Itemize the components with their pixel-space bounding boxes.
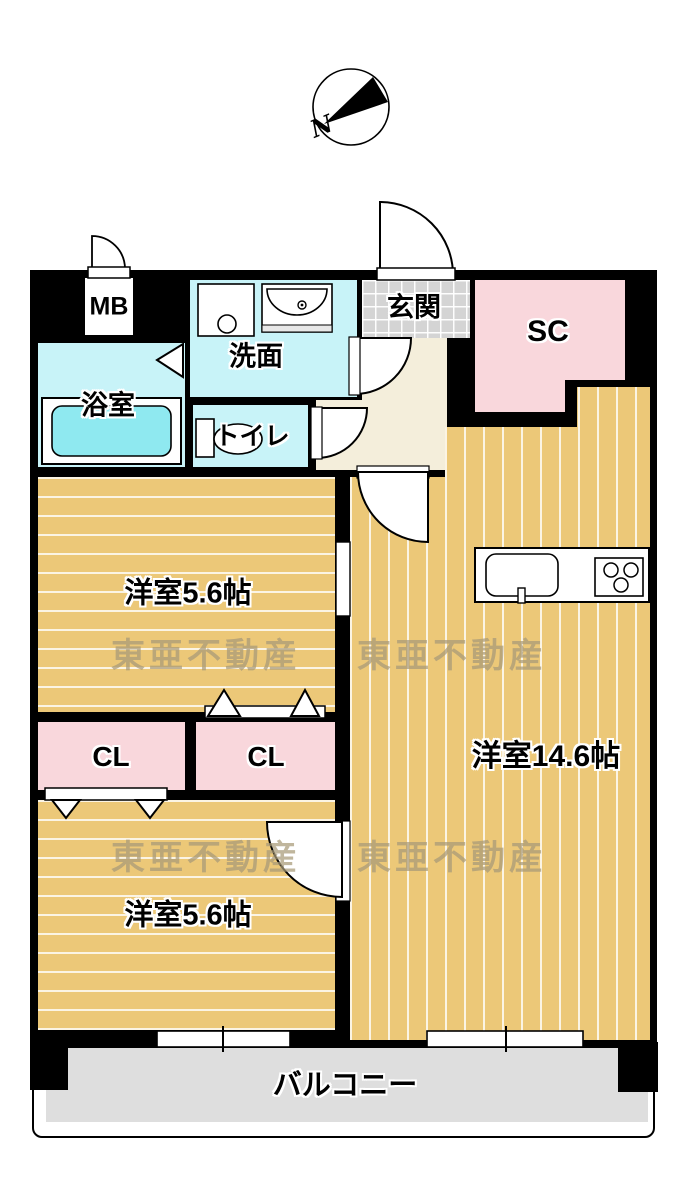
label-mb: MB (90, 295, 129, 320)
bathroom-door-icon (157, 344, 183, 377)
label-balcony: バルコニー (273, 1072, 417, 1101)
label-closet-left: CL (92, 743, 129, 771)
kitchen-counter-icon (475, 548, 649, 603)
label-washroom: 洗面 (229, 344, 283, 371)
label-bedroom-upper: 洋室5.6帖 (124, 580, 251, 609)
stove-icon (595, 558, 643, 596)
washing-machine-icon (198, 284, 254, 336)
toilet-door-icon (311, 407, 367, 459)
watermark: 東亜不動産 (111, 841, 301, 875)
mb-door-icon (88, 236, 130, 278)
closet-left-door-icon (45, 788, 167, 818)
sliding-door-icon (336, 542, 350, 616)
label-shoe-closet: SC (527, 317, 569, 347)
window-right-icon (427, 1026, 583, 1052)
window-left-icon (157, 1026, 290, 1052)
washroom-door-icon (349, 337, 411, 395)
fixtures-overlay: N (0, 0, 685, 1190)
label-bedroom-lower: 洋室5.6帖 (124, 902, 251, 931)
label-living-room: 洋室14.6帖 (472, 742, 620, 772)
watermark: 東亜不動産 (357, 841, 547, 875)
compass-icon: N (305, 69, 389, 145)
entrance-door-icon (377, 202, 455, 280)
balcony-wall-right (618, 1042, 658, 1092)
living-room-door-icon (357, 466, 429, 542)
label-toilet: トイレ (214, 425, 289, 450)
watermark: 東亜不動産 (111, 639, 301, 673)
balcony-wall-left (30, 1032, 68, 1090)
label-entrance: 玄関 (387, 295, 441, 322)
sink-icon (262, 284, 332, 332)
closet-right-door-icon (205, 690, 325, 718)
watermark: 東亜不動産 (357, 639, 547, 673)
label-closet-right: CL (247, 743, 284, 771)
label-bathroom: 浴室 (81, 393, 135, 420)
floor-plan: N (0, 0, 685, 1190)
